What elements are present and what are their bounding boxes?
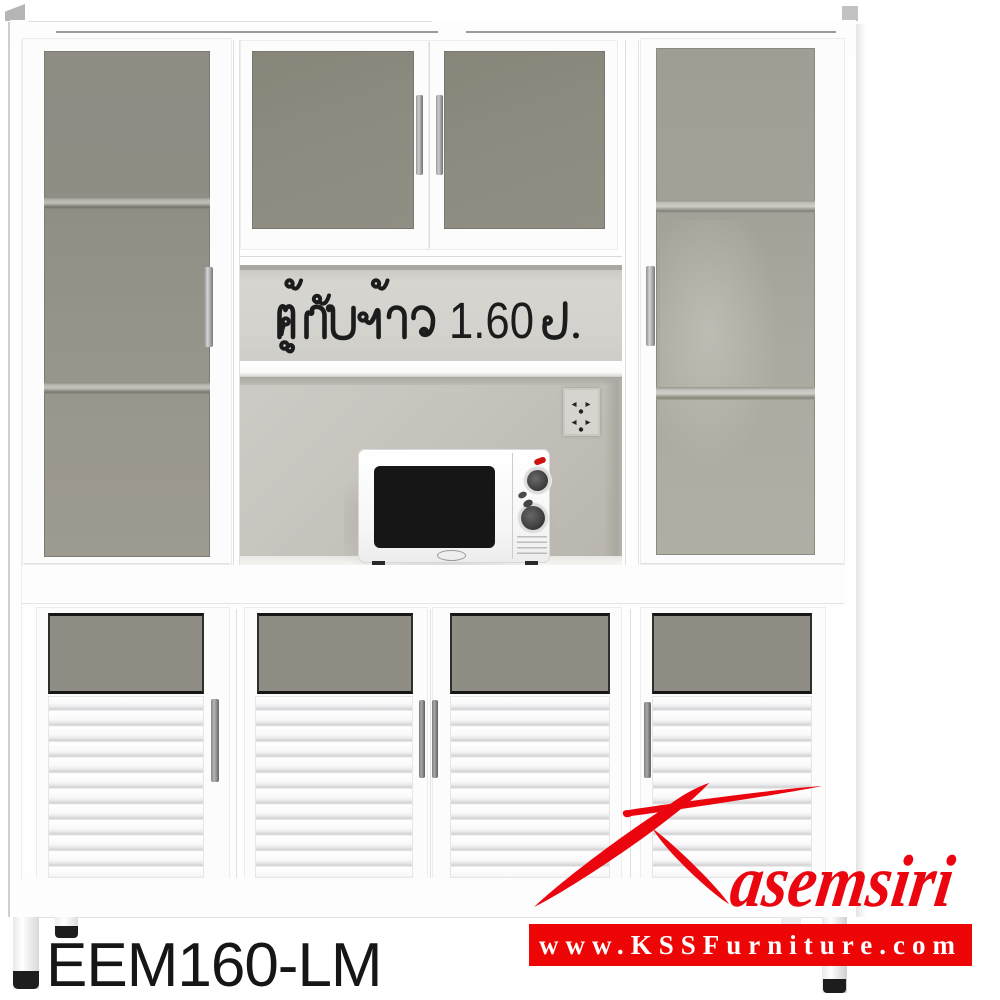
svg-text:asemsiri: asemsiri <box>726 841 960 923</box>
